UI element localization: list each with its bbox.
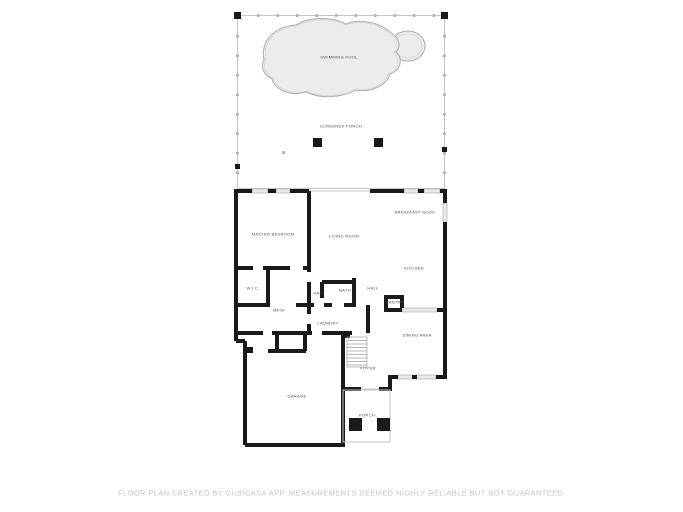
- room-label-swimming-pool: SWIMMING POOL: [320, 55, 357, 60]
- room-label-porch: PORCH: [359, 413, 375, 418]
- room-label-breakfast-nook: BREAKFAST NOOK: [395, 210, 436, 215]
- room-label-garage: GARAGE: [288, 394, 307, 399]
- room-label-dining-area: DINING AREA: [402, 333, 431, 338]
- floor-plan: SWIMMING POOL SCREENED PORCH MASTER BEDR…: [0, 0, 683, 512]
- room-label-hall-left: HALL: [313, 291, 324, 296]
- room-label-master-bedroom: MASTER BEDROOM: [252, 232, 295, 237]
- porch-columns: [282, 138, 383, 154]
- room-label-screened-porch: SCREENED PORCH: [320, 124, 362, 129]
- walls: [234, 189, 447, 445]
- room-label-pantry: PANTRY: [386, 300, 404, 305]
- room-label-foyer: FOYER: [360, 366, 375, 371]
- room-label-bath-2: BATH: [339, 288, 351, 293]
- footer-disclaimer: FLOOR PLAN CREATED BY CUBICASA APP. MEAS…: [118, 489, 566, 497]
- room-label-laundry: LAUNDRY: [317, 321, 338, 326]
- room-label-hall-right: HALL: [367, 286, 378, 291]
- staircase: [347, 337, 367, 367]
- room-label-living-room: LIVING ROOM: [329, 234, 359, 239]
- floor-plan-drawing: [0, 0, 683, 512]
- room-label-master-bath: BATH: [273, 308, 285, 313]
- room-label-kitchen: KITCHEN: [404, 266, 424, 271]
- room-label-wic: W.I.C.: [247, 286, 260, 291]
